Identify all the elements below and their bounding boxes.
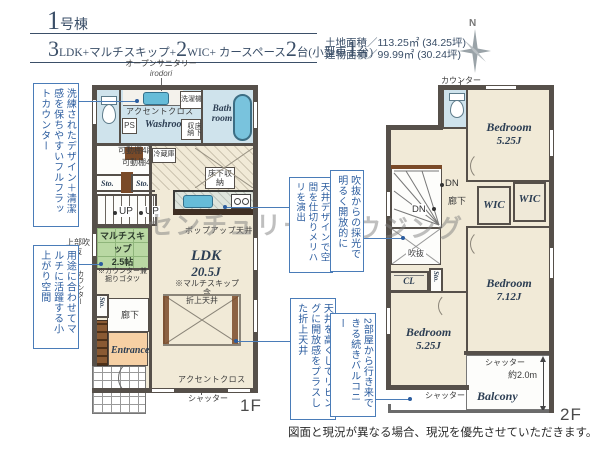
window-1f-g: [228, 388, 250, 393]
window-1f-f: [152, 388, 174, 393]
wall-1f-wet: [92, 143, 258, 146]
wic-1-label: WIC: [479, 199, 509, 211]
up-dot-1: [113, 211, 117, 215]
wall-2f-balcony-top: [464, 351, 554, 355]
bedroom-2-door-arc: [470, 230, 498, 258]
ldk-size-label: 20.5J: [178, 264, 234, 280]
fridge-label: 冷蔵庫: [153, 151, 175, 159]
underfloor-label-1: 床下収納: [186, 122, 201, 139]
storage-hall: Sto.: [95, 294, 109, 318]
leader-dot-counter: [135, 99, 139, 103]
window-1f-d: [253, 238, 258, 270]
wall-1f-ldk-left: [149, 226, 152, 390]
ps-label: PS: [124, 121, 135, 130]
toilet-bowl-icon: [102, 104, 116, 124]
multi-skip-room: マルチスキップ 2.5帖 ※カウンター兼 掘りゴタツ: [95, 226, 150, 270]
closet-2f: CL: [389, 271, 429, 292]
window-1f-c: [253, 102, 258, 128]
coffered-ceiling-zone: 折上天井: [163, 294, 241, 346]
wall-2f-left: [386, 125, 391, 390]
header-rule-top: [30, 33, 317, 34]
page-title: 1号棟: [47, 6, 88, 36]
spec-num-2: 2: [176, 36, 187, 61]
leader-dot-coffered: [234, 339, 238, 343]
balcony-rail-post-left: [388, 404, 391, 413]
washer-label: 洗濯機: [181, 96, 202, 104]
spec-num-3: 2: [286, 36, 297, 61]
bedroom-2-size: 7.12J: [468, 291, 550, 303]
dimension-arrow-line: [543, 358, 544, 408]
toilet-room-1f: [95, 88, 121, 146]
window-1f-e: [253, 300, 258, 332]
up-dot-2: [139, 211, 143, 215]
bathtub-icon: [233, 94, 252, 141]
multi-skip-name: マルチスキップ: [97, 229, 148, 255]
bedroom-1-label: Bedroom: [468, 120, 550, 135]
dn-dot-2: [432, 207, 436, 211]
wall-2f-main-top: [386, 125, 443, 130]
hallway-1f-label: 廊下: [121, 310, 139, 321]
irodori-label: irodori: [118, 69, 204, 78]
spec-line: 3LDK+マルチスキップ+2WIC+ カースペース2台(小型車1台): [48, 38, 328, 61]
bedroom-1-size: 5.25J: [468, 135, 550, 147]
watermark-right: ウジング: [356, 209, 464, 245]
wic-2-label: WIC: [515, 193, 544, 205]
fridge-box: 冷蔵庫: [152, 148, 176, 163]
toilet-room-2f: [442, 88, 469, 129]
wall-2f-toilet-left: [438, 85, 443, 130]
leader-dot-ceiling: [223, 205, 227, 209]
building-number: 1: [47, 6, 60, 35]
ps-shaft: PS: [122, 118, 137, 134]
annotation-balcony: 2部屋から行き来できる続きバルコニー: [330, 313, 376, 417]
window-1f-a: [92, 100, 97, 124]
coffered-beam-right: [232, 296, 238, 344]
coffered-beam-left: [163, 296, 169, 344]
spec-text-1: LDK+マルチスキップ+: [59, 47, 176, 59]
annotation-counter: 洗練されたデザイン＋清潔感を保ちやすいフルフラットカウンター: [33, 83, 79, 227]
floor1-label: 1F: [240, 396, 262, 416]
stairs-2f-landing: [391, 165, 442, 169]
void-2f-label: 吹抜: [406, 249, 426, 258]
dimension-arrow-up: [540, 356, 546, 362]
floorplan-sheet: 1号棟 3LDK+マルチスキップ+2WIC+ カースペース2台(小型車1台) 土…: [0, 0, 600, 451]
leader-dot-multi: [99, 262, 103, 266]
leader-line-coffered: [236, 341, 290, 342]
shutter-label-1f: シャッター: [188, 394, 228, 403]
leader-dot-void: [401, 236, 405, 240]
bedroom-1-door-arc: [470, 152, 498, 180]
dn-label-1: DN: [445, 178, 459, 189]
entrance-label: Entrance: [111, 345, 147, 356]
bedroom-3-size: 5.25J: [391, 340, 466, 352]
bathroom: Bath room: [201, 88, 255, 146]
compass-n-label: N: [469, 18, 476, 29]
multi-skip-note2: 掘りゴタツ: [97, 276, 148, 284]
wall-2f-bottom: [386, 385, 469, 390]
multi-skip-note1: ※カウンター兼: [97, 268, 148, 276]
underfloor-storage-washroom: 床下収納: [181, 119, 201, 140]
annotation-ceiling-design: 天井デザインで空間を仕切りメリハリを演出: [289, 177, 333, 273]
annotation-multi-space: 用途に合わせてマルチに活躍する小上がり空間: [33, 245, 79, 349]
wic-2: WIC: [513, 182, 546, 222]
window-2f-b: [386, 308, 391, 334]
disclaimer: 図面と現況が異なる場合、現況を優先させていただきます。: [288, 424, 597, 440]
bedroom-3-door-arc: [438, 293, 464, 319]
wall-1f-top: [92, 85, 258, 90]
compass-icon: N: [455, 18, 495, 74]
counter-label-2f: カウンター: [441, 76, 481, 85]
sink-icon: [143, 92, 169, 105]
wall-1f-left: [92, 85, 97, 366]
closet-2f-label: CL: [391, 276, 427, 286]
open-sanitary-label: オープンサニタリー: [118, 59, 204, 68]
shutter-label-2f-a: シャッター: [485, 358, 525, 367]
window-1f-b: [92, 234, 97, 256]
up-label-1: UP: [118, 206, 134, 217]
multi-skip-size: 2.5帖: [97, 255, 148, 268]
leader-dot-balcony: [408, 397, 412, 401]
annotation-void-light: 吹抜からの採光で明るく開放的に: [330, 170, 364, 272]
floor2-label: 2F: [560, 405, 582, 425]
toilet-2f-icon: [450, 100, 464, 118]
accent-cloth-label-bottom: アクセントクロス: [178, 375, 246, 384]
balcony-depth-label: 約2.0m: [508, 370, 537, 381]
coffered-ceiling-label: 折上天井: [180, 296, 224, 305]
leader-line-ceiling: [225, 207, 289, 208]
washroom: アクセントクロス PS Washroom 洗濯機 床下収納: [119, 88, 203, 146]
balcony-label: Balcony: [477, 389, 518, 404]
wic-1: WIC: [477, 186, 511, 225]
bedroom-3-label: Bedroom: [391, 325, 466, 340]
storage-2f-label: Sto.: [432, 271, 440, 282]
bedroom-2-label: Bedroom: [468, 276, 550, 291]
building-suffix: 号棟: [60, 16, 88, 32]
building-area: 建物面積／99.99㎡ (30.24坪): [325, 47, 461, 62]
ldk-label: LDK: [178, 248, 234, 265]
dn-dot-1: [440, 183, 444, 187]
hallway-2f-label: 廊下: [448, 196, 466, 207]
balcony-rail: [388, 410, 553, 413]
shutter-label-2f-b: シャッター: [425, 391, 465, 400]
spec-text-2: WIC+ カースペース: [187, 47, 286, 59]
window-2f-e: [486, 85, 516, 90]
washer-box: 洗濯機: [180, 91, 203, 109]
window-2f-d: [549, 248, 554, 278]
storage-hall-label: Sto.: [98, 297, 106, 308]
window-2f-c: [549, 130, 554, 156]
storage-1: Sto.: [95, 174, 123, 192]
leader-line-void: [357, 238, 403, 239]
storage-1-label: Sto.: [101, 179, 121, 188]
spec-num-1: 3: [48, 36, 59, 61]
